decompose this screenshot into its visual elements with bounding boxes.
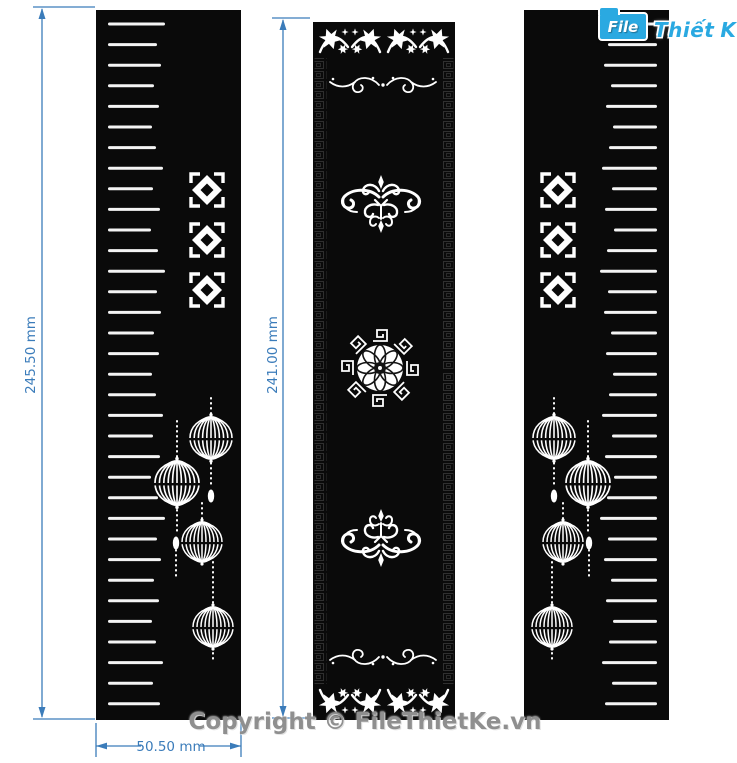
slat-cut	[108, 393, 156, 396]
slat-cut	[108, 270, 165, 273]
lattice-square-ornaments	[191, 174, 223, 306]
slat-cut	[108, 105, 159, 108]
slat-cut	[108, 517, 165, 520]
left-height-dimension-label: 245.50 mm	[23, 316, 39, 394]
slat-cut	[108, 702, 160, 705]
slat-cut	[108, 661, 163, 664]
slat-cut	[108, 476, 151, 479]
slat-cut	[108, 290, 157, 293]
slat-cut	[108, 373, 152, 376]
design-preview-canvas: 245.50 mm 241.00 mm 50.50 mm File Thiết …	[0, 0, 737, 763]
bottom-width-dimension-label: 50.50 mm	[136, 739, 205, 755]
slat-cut	[108, 167, 163, 170]
slat-cut	[108, 23, 165, 26]
middle-height-dimension-label: 241.00 mm	[265, 316, 281, 394]
slat-cut	[108, 599, 159, 602]
slat-cut	[108, 332, 154, 335]
pendant-leaf-icon	[208, 490, 214, 503]
slat-cut	[108, 146, 156, 149]
slat-cut	[108, 558, 161, 561]
slat-cut	[108, 43, 157, 46]
pendant-leaf-icon	[173, 537, 179, 550]
site-logo: File Thiết Kế .vn	[598, 6, 737, 42]
logo-brand-part2: Kế	[720, 18, 737, 42]
slat-cut	[108, 435, 153, 438]
mandala-medallion-icon	[342, 330, 418, 406]
slat-cut	[108, 496, 158, 499]
cnc-design-drawing: 245.50 mm 241.00 mm 50.50 mm	[0, 0, 737, 763]
right-side-panel	[524, 10, 669, 720]
slat-cut	[108, 208, 160, 211]
slat-cut	[108, 414, 163, 417]
left-side-panel	[96, 10, 241, 720]
slat-cut	[108, 64, 161, 67]
slat-cut	[108, 84, 154, 87]
slat-cut	[108, 352, 159, 355]
folder-icon: File	[598, 12, 648, 41]
slat-cut	[108, 126, 152, 129]
slat-cut	[108, 641, 156, 644]
slat-cut	[108, 187, 153, 190]
slat-cut	[108, 620, 152, 623]
copyright-watermark: Copyright © FileThietKe.vn	[189, 709, 542, 735]
slat-cut	[108, 229, 151, 232]
logo-folder-text: File	[608, 18, 639, 36]
middle-panel	[313, 22, 455, 720]
slat-cut	[108, 579, 154, 582]
slat-cut	[108, 455, 160, 458]
logo-brand-part1: Thiết	[654, 18, 714, 42]
greek-key-border-left	[315, 58, 327, 371]
slat-cut	[108, 538, 157, 541]
greek-key-border-right	[442, 58, 454, 371]
slat-cut	[108, 249, 158, 252]
slat-cut	[108, 311, 161, 314]
slat-cut	[108, 682, 153, 685]
